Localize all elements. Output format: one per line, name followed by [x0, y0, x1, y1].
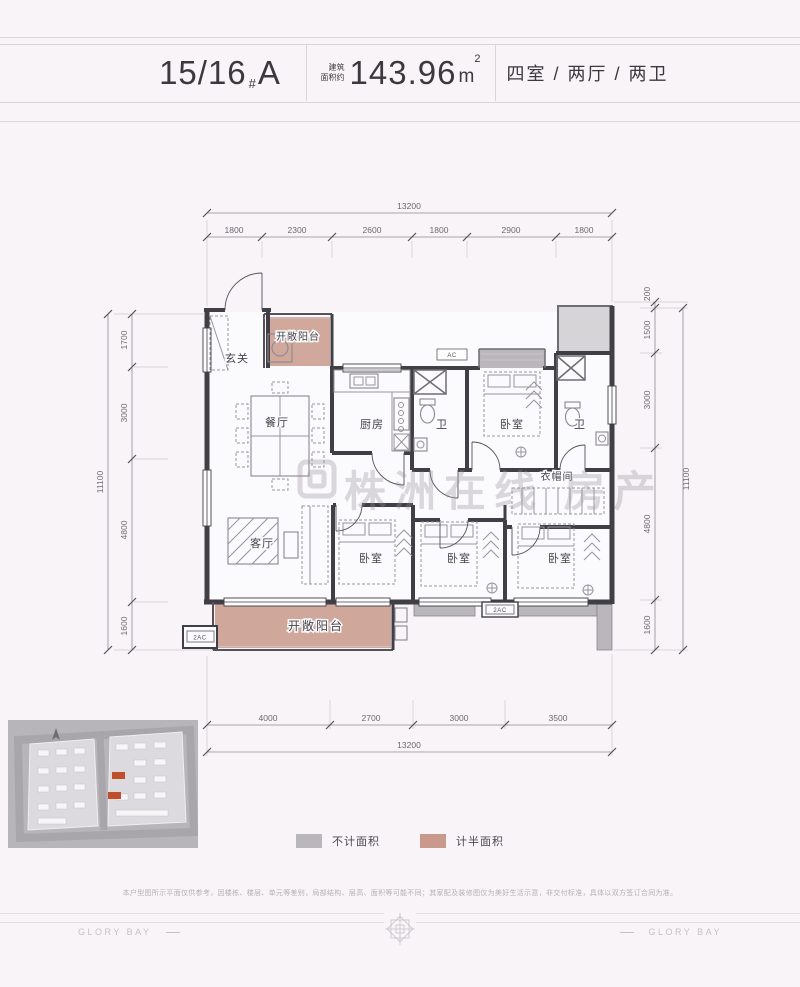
room-label-bath1: 卫	[436, 419, 448, 431]
floorplan-page: { "header": { "unit": "15/16", "unit_sep…	[0, 0, 800, 987]
dim-bottom-total: 13200	[397, 740, 421, 750]
dim-top-1: 2300	[288, 225, 307, 235]
legend-item-half-area: 计半面积	[420, 833, 504, 849]
dim-left-3: 1600	[119, 616, 129, 635]
dim-right-4: 1600	[642, 615, 652, 634]
dim-top-5: 1800	[575, 225, 594, 235]
dim-top-2: 2600	[363, 225, 382, 235]
legend-label-half-area: 计半面积	[456, 833, 504, 849]
room-label-bath2: 卫	[574, 419, 586, 431]
ac-label-bottom: 2AC	[493, 608, 506, 614]
room-label-bedroom4: 卧室	[548, 551, 572, 565]
disclaimer-text: 本户型图所示平面仅供参考，因楼栋、楼层、单元等差别，局部结构、层高、面积等可能不…	[0, 888, 800, 898]
header-bottom-rule	[0, 121, 800, 122]
dim-bottom-1: 2700	[362, 713, 381, 723]
room-label-balcony-top: 开敞阳台	[276, 330, 320, 343]
dim-right-total: 11100	[681, 468, 691, 491]
room-label-bedroom3: 卧室	[447, 551, 471, 565]
legend-swatch-no-area	[296, 834, 322, 848]
dim-top-total: 13200	[397, 201, 421, 211]
area-block: 建筑 面积约 143.96 m 2	[306, 44, 495, 101]
gray-strip-3	[597, 602, 612, 650]
room-label-bedroom2: 卧室	[359, 551, 383, 565]
room-label-kitchen: 厨房	[360, 418, 384, 431]
dim-bottom-2: 3000	[450, 713, 469, 723]
dim-left-total: 11100	[95, 471, 105, 494]
room-label-bedroom-top: 卧室	[500, 417, 524, 431]
legend-item-no-area: 不计面积	[296, 833, 380, 849]
watermark-text: 株洲在线 房产	[344, 468, 664, 515]
area-unit: m	[458, 58, 474, 88]
site-map	[8, 720, 198, 848]
dim-top-4: 2900	[502, 225, 521, 235]
footer-dash-right	[620, 932, 634, 933]
room-label-balcony-bottom: 开敞阳台	[288, 618, 344, 633]
dim-left-1: 3000	[119, 403, 129, 422]
unit-number: 15/16	[159, 54, 247, 92]
floorplan-drawing: AC 2AC 2AC	[0, 185, 800, 765]
legend: 不计面积 计半面积	[0, 833, 800, 849]
dim-right-1: 1500	[642, 320, 652, 339]
dim-top-3: 1800	[430, 225, 449, 235]
footer-dash-left	[166, 932, 180, 933]
ac-label-left: 2AC	[193, 636, 206, 642]
unit-title: 15/16#A	[130, 44, 310, 101]
bay-window-fill	[479, 349, 545, 368]
dim-right-2: 3000	[642, 390, 652, 409]
dim-bottom-0: 4000	[259, 713, 278, 723]
layout-text: 四室 / 两厅 / 两卫	[506, 60, 668, 86]
header-top-rule	[0, 37, 800, 38]
dim-bottom-3: 3500	[549, 713, 568, 723]
unit-letter: A	[258, 54, 281, 92]
room-label-entry: 玄关	[225, 351, 249, 365]
footer-brand-right: GLORY BAY	[620, 927, 722, 937]
footer-logo	[384, 911, 416, 947]
roof-platform	[558, 306, 612, 353]
ac-label-top: AC	[447, 353, 457, 359]
dim-top-0: 1800	[225, 225, 244, 235]
room-label-dining: 餐厅	[265, 415, 289, 429]
dim-right-0: 200	[642, 287, 652, 301]
legend-label-no-area: 不计面积	[332, 833, 380, 849]
room-label-living: 客厅	[250, 536, 274, 550]
dim-right-3: 4800	[642, 514, 652, 533]
area-value: 143.96	[350, 54, 457, 92]
area-superscript: 2	[474, 53, 480, 65]
watermark: 株洲在线 房产	[300, 462, 664, 515]
footer-brand-left: GLORY BAY	[78, 927, 180, 937]
area-label: 建筑 面积约	[321, 63, 345, 83]
dim-left-2: 4800	[119, 520, 129, 539]
dim-left-0: 1700	[119, 330, 129, 349]
layout-block: 四室 / 两厅 / 两卫	[495, 44, 680, 101]
legend-swatch-half-area	[420, 834, 446, 848]
unit-hash: #	[249, 76, 256, 101]
